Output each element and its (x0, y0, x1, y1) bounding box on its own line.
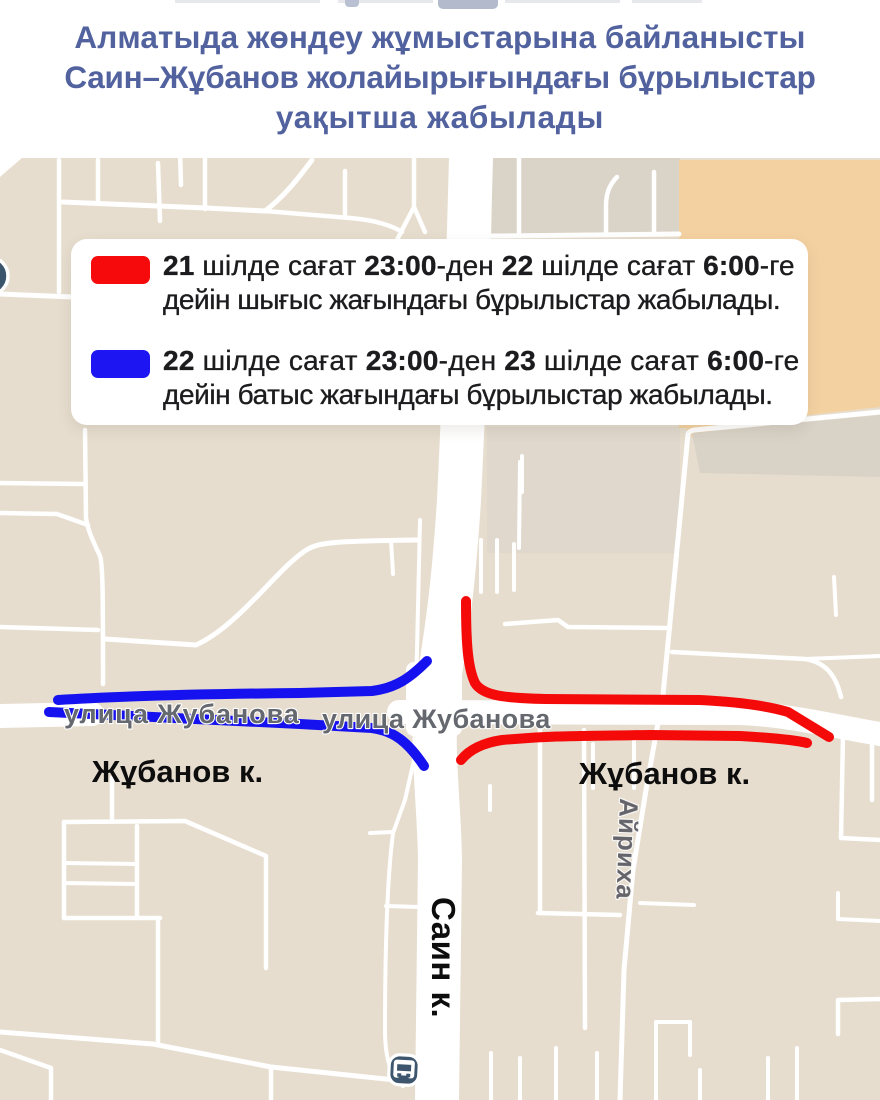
svg-text:Айриха: Айриха (610, 798, 644, 901)
svg-text:Жұбанов к.: Жұбанов к. (578, 756, 750, 791)
svg-text:Жұбанов к.: Жұбанов к. (91, 754, 263, 789)
svg-text:улица Жубанова: улица Жубанова (64, 699, 300, 729)
svg-text:улица Жубанова: улица Жубанова (322, 704, 551, 734)
svg-text:Саин к.: Саин к. (425, 897, 462, 1018)
